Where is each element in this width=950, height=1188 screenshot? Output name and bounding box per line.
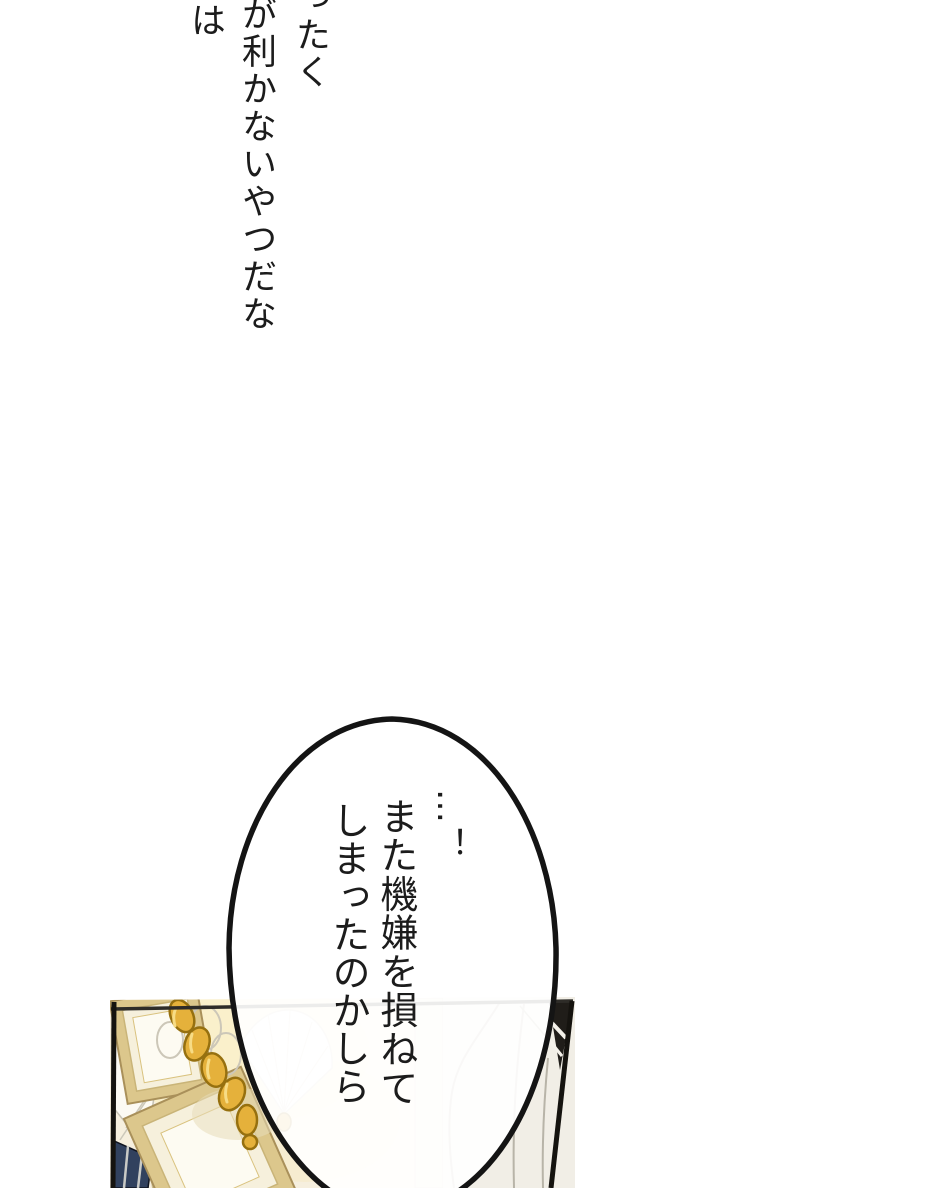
manga-page: ったく が利かないやつだな は …！ また機嫌を損ねて しまったのかしら: [0, 0, 950, 1188]
monologue-column-1: ったく: [292, 0, 327, 90]
bubble-text-column-2: また機嫌を損ねて: [377, 797, 415, 1107]
panel-artwork: [0, 0, 950, 1188]
monologue-column-2: が利かないやつだな: [238, 0, 273, 333]
bubble-text-column-3: しまったのかしら: [329, 801, 367, 1105]
monologue-column-3: は: [187, 2, 222, 39]
bubble-text-column-1: …！: [432, 789, 466, 865]
panel-border-left: [113, 1002, 114, 1188]
